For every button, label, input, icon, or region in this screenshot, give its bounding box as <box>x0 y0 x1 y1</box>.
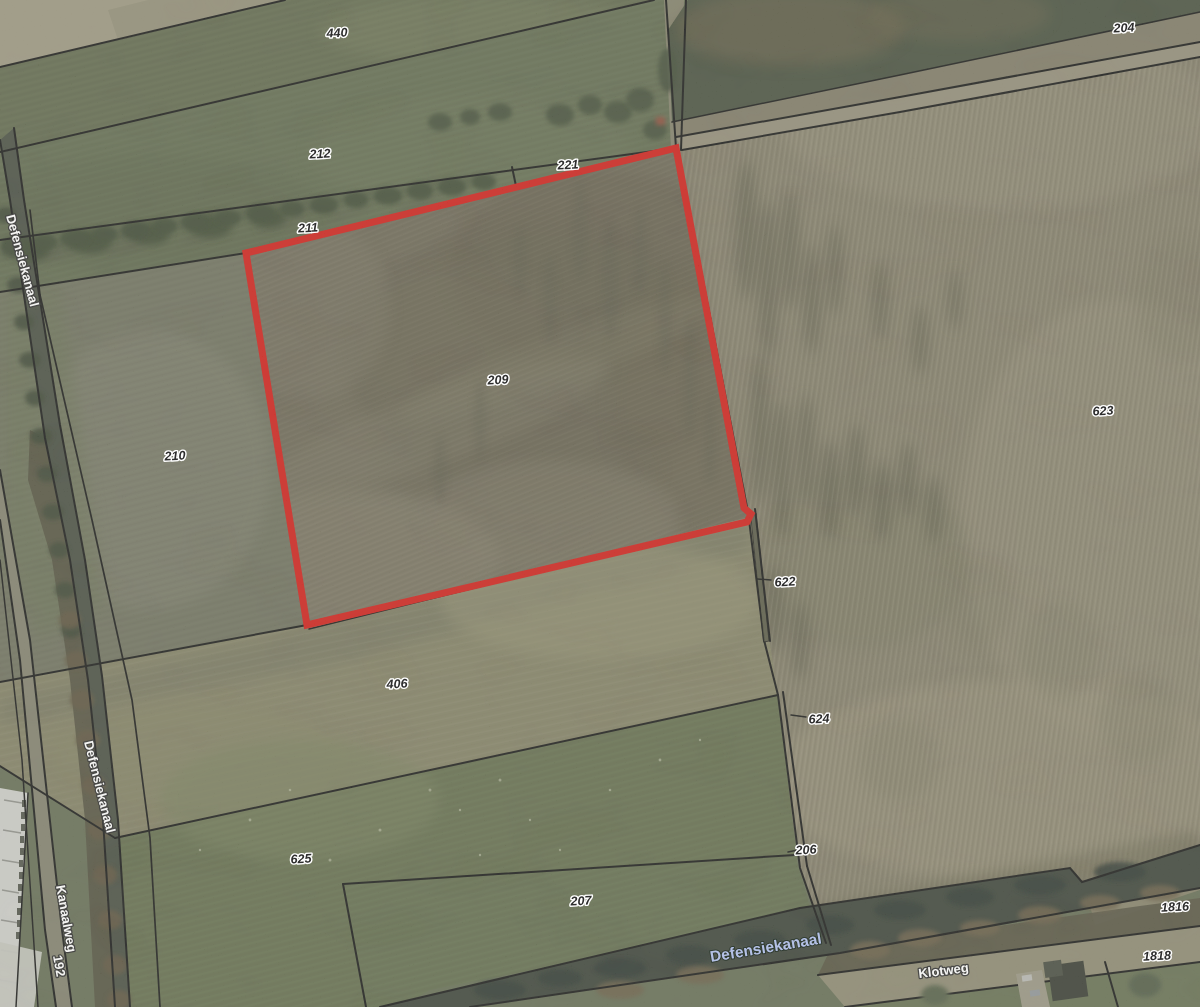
svg-text:212: 212 <box>308 146 331 161</box>
svg-text:207: 207 <box>569 893 593 908</box>
svg-text:406: 406 <box>385 676 409 691</box>
svg-text:206: 206 <box>794 842 818 857</box>
svg-text:1818: 1818 <box>1143 948 1172 963</box>
svg-text:204: 204 <box>1112 20 1135 35</box>
svg-text:622: 622 <box>774 574 796 589</box>
svg-text:625: 625 <box>290 851 313 866</box>
svg-text:1816: 1816 <box>1161 899 1191 914</box>
svg-text:221: 221 <box>556 157 579 172</box>
svg-text:623: 623 <box>1092 403 1114 418</box>
svg-text:209: 209 <box>486 372 509 387</box>
svg-text:624: 624 <box>808 711 830 726</box>
svg-text:440: 440 <box>325 25 348 40</box>
svg-text:210: 210 <box>163 448 186 463</box>
svg-text:211: 211 <box>297 220 319 235</box>
